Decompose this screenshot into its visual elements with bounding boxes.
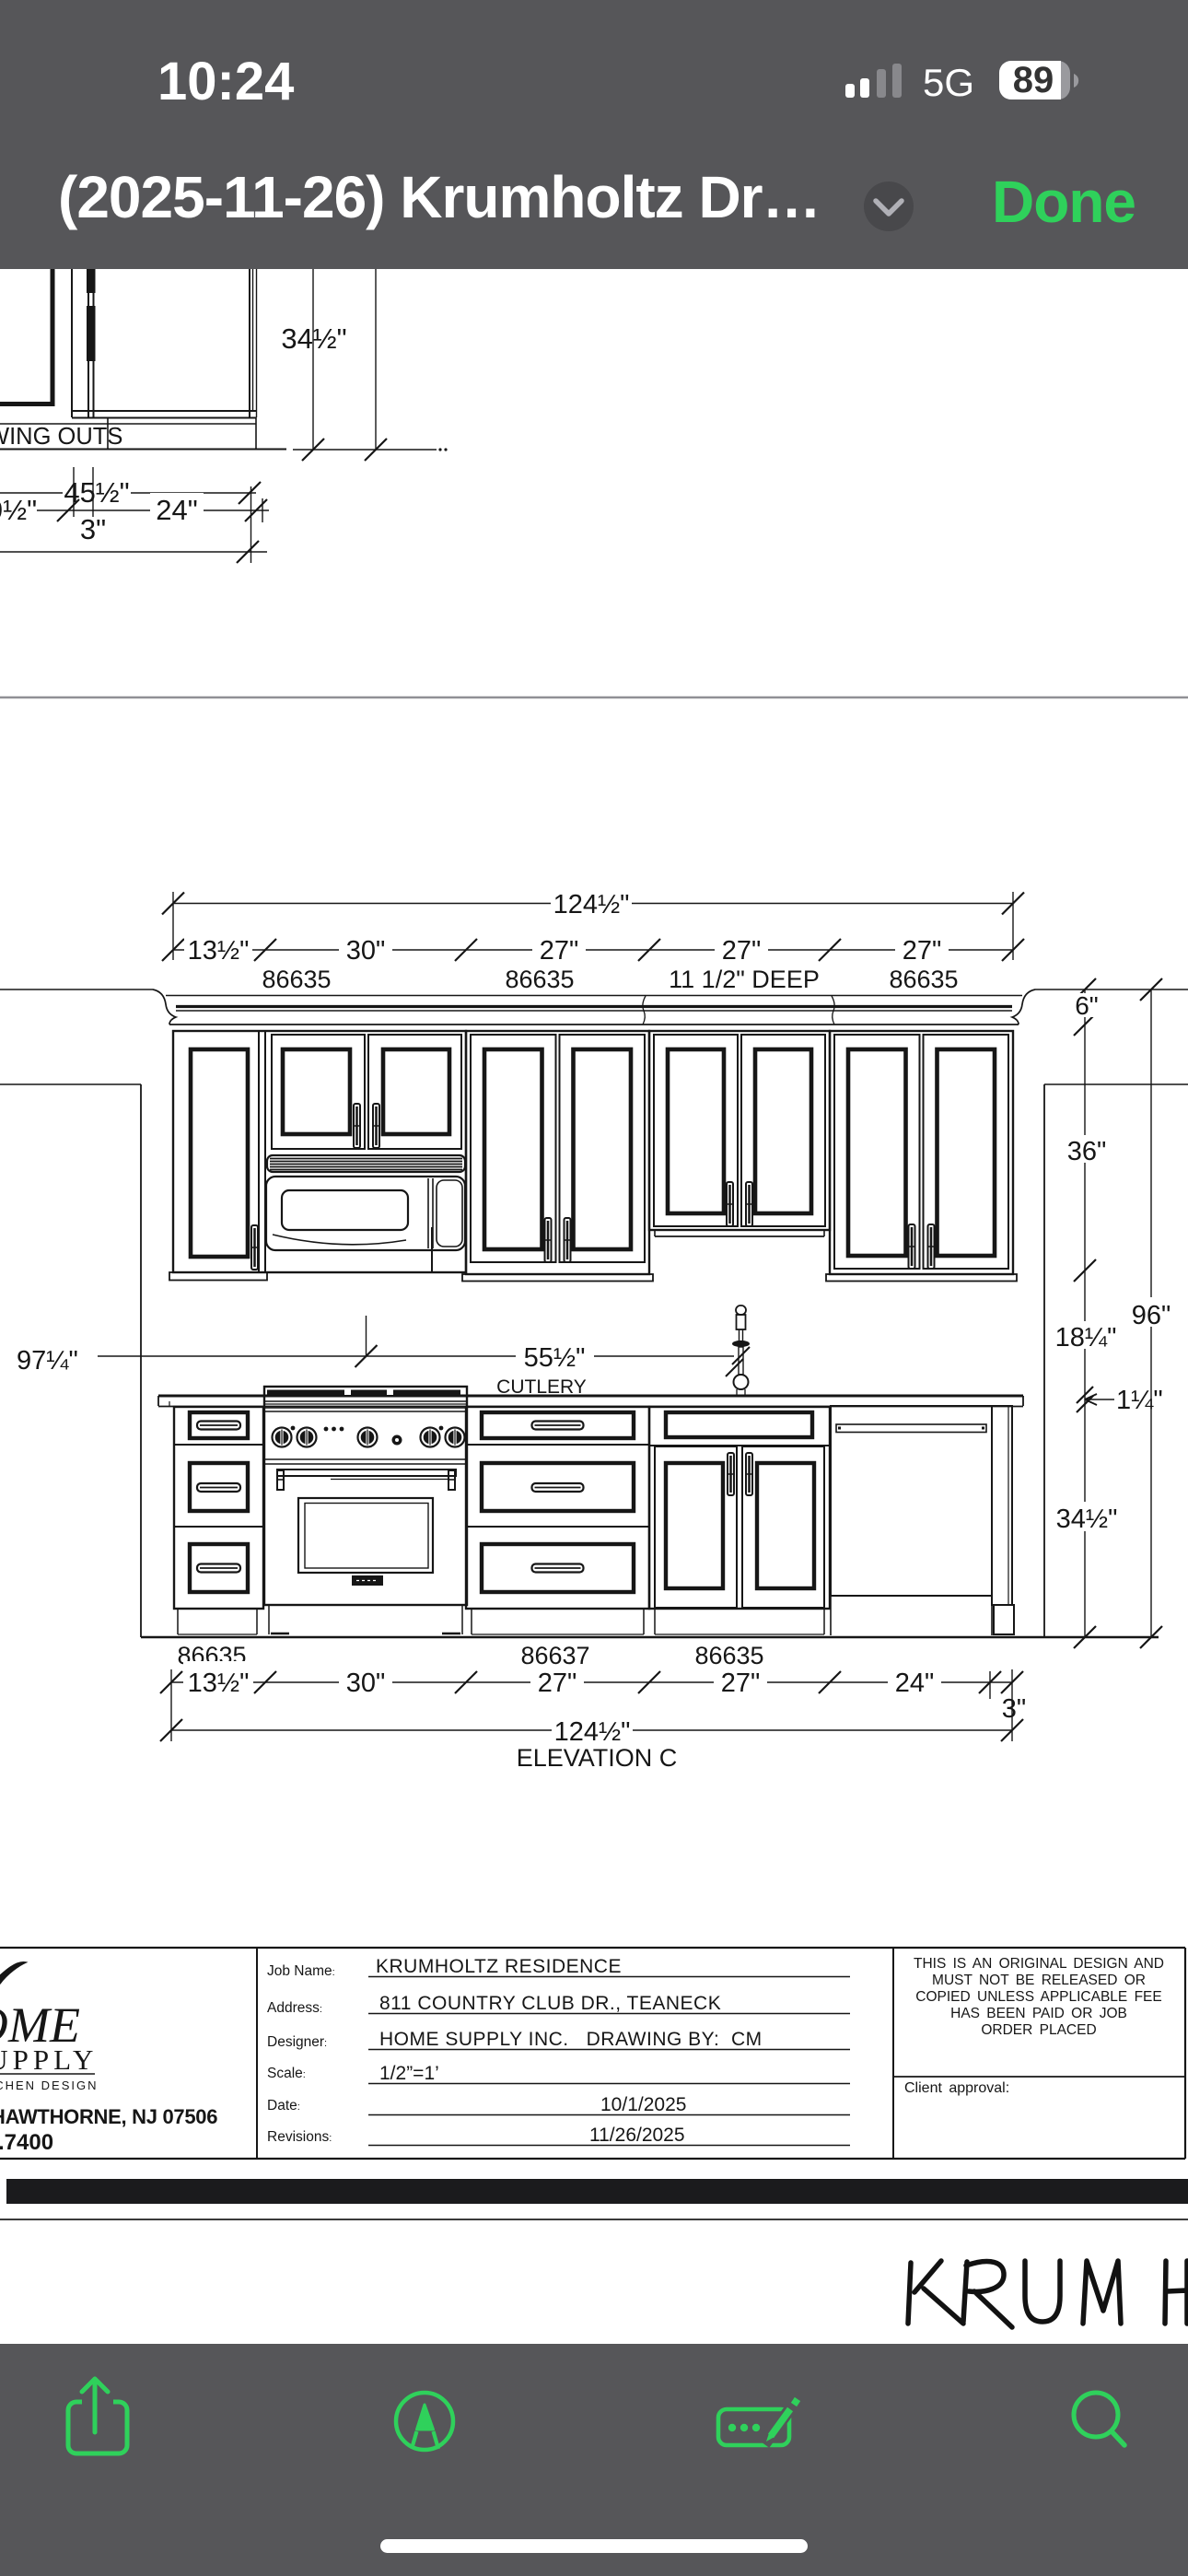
svg-text:3": 3" — [80, 513, 106, 545]
svg-text:Job Name:: Job Name: — [267, 1963, 335, 1979]
svg-text:.7400: .7400 — [0, 2130, 53, 2155]
svg-text:Designer:: Designer: — [267, 2034, 327, 2050]
svg-text:27": 27" — [540, 936, 579, 966]
svg-text:Client approval:: Client approval: — [904, 2080, 1009, 2096]
svg-text:96": 96" — [1132, 1301, 1171, 1330]
svg-text:HAWTHORNE, NJ 07506: HAWTHORNE, NJ 07506 — [0, 2105, 217, 2128]
svg-text:1/2”=1’: 1/2”=1’ — [379, 2063, 439, 2084]
svg-text:Address:: Address: — [267, 2000, 322, 2016]
svg-text:Revisions:: Revisions: — [267, 2129, 332, 2145]
svg-text:ELEVATION C: ELEVATION C — [517, 1744, 678, 1772]
svg-text:34½": 34½" — [281, 322, 346, 355]
svg-text:HAS BEEN PAID OR JOB: HAS BEEN PAID OR JOB — [950, 2006, 1127, 2021]
svg-text:KRUMHOLTZ RESIDENCE: KRUMHOLTZ RESIDENCE — [376, 1956, 622, 1977]
svg-text:WING OUTS: WING OUTS — [0, 424, 122, 450]
svg-text:86635: 86635 — [889, 966, 958, 993]
svg-text:124½": 124½" — [554, 1717, 631, 1747]
svg-text:36": 36" — [1067, 1137, 1107, 1166]
svg-text:97¼": 97¼" — [17, 1346, 78, 1376]
svg-text:Date:: Date: — [267, 2098, 300, 2113]
svg-text:30": 30" — [346, 1669, 386, 1698]
svg-text:55½": 55½" — [524, 1343, 586, 1373]
svg-text:10/1/2025: 10/1/2025 — [600, 2094, 686, 2115]
svg-text:9½": 9½" — [0, 494, 37, 526]
svg-text:86635: 86635 — [694, 1642, 763, 1669]
svg-text:5G: 5G — [923, 61, 974, 104]
svg-text:COPIED UNLESS APPLICABLE FEE: COPIED UNLESS APPLICABLE FEE — [915, 1989, 1161, 2005]
svg-text:34½": 34½" — [1056, 1505, 1118, 1534]
svg-text:Scale:: Scale: — [267, 2066, 306, 2081]
svg-text:SUPPLY: SUPPLY — [0, 2043, 98, 2076]
svg-text:27": 27" — [721, 1669, 761, 1698]
svg-text:24": 24" — [156, 494, 198, 526]
svg-text:18¼": 18¼" — [1055, 1323, 1117, 1352]
svg-text:86635: 86635 — [505, 966, 574, 993]
svg-text:24": 24" — [895, 1669, 935, 1698]
svg-text:13½": 13½" — [188, 936, 250, 966]
svg-text:THIS IS AN ORIGINAL DESIGN AND: THIS IS AN ORIGINAL DESIGN AND — [914, 1956, 1164, 1972]
svg-text:27": 27" — [538, 1669, 577, 1698]
svg-text:MUST NOT BE RELEASED OR: MUST NOT BE RELEASED OR — [932, 1973, 1146, 1988]
svg-text:124½": 124½" — [553, 890, 630, 919]
svg-text:ORDER PLACED: ORDER PLACED — [981, 2022, 1096, 2038]
svg-text:89: 89 — [1013, 60, 1054, 100]
svg-text:811 COUNTRY CLUB DR., TEANECK: 811 COUNTRY CLUB DR., TEANECK — [379, 1993, 721, 2014]
svg-text:1¼": 1¼" — [1116, 1386, 1163, 1415]
svg-text:86637: 86637 — [520, 1642, 589, 1669]
svg-text:KITCHEN DESIGN: KITCHEN DESIGN — [0, 2078, 99, 2092]
svg-text:13½": 13½" — [188, 1669, 250, 1698]
svg-text:27": 27" — [903, 936, 942, 966]
svg-text:HOME SUPPLY INC. DRAWING BY:: HOME SUPPLY INC. DRAWING BY: CM — [379, 2029, 763, 2050]
svg-text:6": 6" — [1075, 991, 1099, 1020]
svg-text:30": 30" — [346, 936, 386, 966]
svg-text:86635: 86635 — [262, 966, 331, 993]
svg-text:11 1/2" DEEP: 11 1/2" DEEP — [669, 966, 820, 993]
svg-text:11/26/2025: 11/26/2025 — [589, 2125, 685, 2146]
svg-text:27": 27" — [722, 936, 762, 966]
